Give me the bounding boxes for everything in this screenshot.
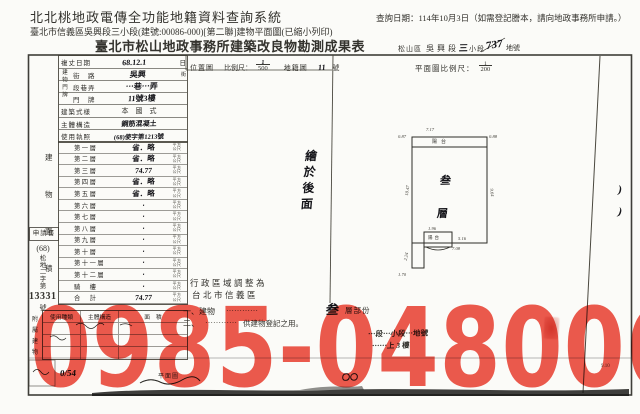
floor-unit: 平方公尺 bbox=[167, 247, 187, 256]
door-number-label: 門 牌 bbox=[71, 94, 96, 104]
door-number-value: 11號3樓 bbox=[95, 92, 188, 105]
floor-row: 第二層 省．略 平方公尺 bbox=[59, 154, 187, 166]
scanned-document-page: 北北桃地政電傳全功能地籍資料查詢系統 查詢日期：114年10月3日（如需登記謄本… bbox=[0, 0, 640, 414]
cadastral-map-label: 地籍圖 bbox=[284, 64, 308, 72]
floor-label: 第六層 bbox=[59, 201, 120, 210]
floor-label: 第四層 bbox=[59, 177, 120, 186]
unit-bottom: 公尺 bbox=[167, 274, 187, 278]
floor-label: 第八層 bbox=[59, 224, 120, 233]
floor-row: 第六層 ‧ 平方公尺 bbox=[59, 200, 187, 212]
note-char: 於 bbox=[303, 164, 316, 180]
floor-unit: 平方公尺 bbox=[167, 235, 187, 244]
side-char: 建 bbox=[45, 152, 53, 163]
unit-bottom: 公尺 bbox=[167, 194, 187, 198]
floor-row: 第三層 74.77 平方公尺 bbox=[59, 165, 187, 177]
floor-row: 第五層 省．略 平方公尺 bbox=[59, 188, 187, 200]
floor-label: 第三層 bbox=[59, 166, 120, 175]
plan-scale-fraction: 1 200 bbox=[479, 61, 493, 74]
unit-bottom: 公尺 bbox=[167, 205, 187, 209]
unit-bottom: 公尺 bbox=[167, 228, 187, 232]
app-char: 字 bbox=[29, 276, 57, 283]
survey-date-unit: 日 bbox=[178, 57, 188, 67]
survey-date-label: 複丈日期 bbox=[59, 57, 91, 67]
lane-value: ⋯巷⋯弄 bbox=[95, 80, 188, 93]
floor-row: 第一層 省．略 平方公尺 bbox=[59, 142, 187, 154]
floor-value: 省．略 bbox=[119, 153, 167, 165]
street-label: 街 路 bbox=[71, 70, 96, 80]
plan-scale-den: 200 bbox=[479, 65, 493, 73]
street-value: 吳興 bbox=[95, 68, 180, 80]
floor-unit: 平方公尺 bbox=[167, 224, 187, 233]
unit-bottom: 公尺 bbox=[167, 240, 187, 244]
door-number-row: 門 牌 11號3樓 bbox=[59, 93, 187, 105]
doc-subsection-handwritten: 三 bbox=[458, 41, 468, 54]
structure-row: 主體構造 鋼筋混凝土 bbox=[59, 118, 187, 130]
structure-value: 鋼筋混凝土 bbox=[90, 118, 187, 130]
watermark-phone-number: 0985-048006 bbox=[30, 292, 640, 404]
floor-label: 第七層 bbox=[59, 212, 120, 221]
floor-label: 第一層 bbox=[59, 143, 120, 152]
floor-value: ‧ bbox=[120, 200, 168, 210]
unit-bottom: 公尺 bbox=[167, 147, 187, 151]
location-scale-row: 位置圖 比例尺： 1 500 地籍圖 11 號 bbox=[190, 57, 339, 75]
floor-unit: 平方公尺 bbox=[167, 143, 187, 152]
floor-unit: 平方公尺 bbox=[167, 270, 187, 279]
building-style-value: 本 國 式 bbox=[91, 106, 187, 116]
floor-value: ‧ bbox=[120, 270, 168, 280]
floor-row: 第十層 ‧ 平方公尺 bbox=[59, 246, 187, 258]
floor-row: 第九層 ‧ 平方公尺 bbox=[59, 235, 187, 247]
building-style-label: 建築式樣 bbox=[59, 106, 91, 116]
balcony-top-label: 陽台 bbox=[432, 138, 450, 145]
scale-numerator: 1 bbox=[256, 60, 270, 67]
plan-scale-label: 平面圖比例尺： bbox=[415, 64, 475, 73]
floor-label: 第十二層 bbox=[59, 270, 120, 279]
unit-bottom: 公尺 bbox=[167, 159, 187, 163]
floor-value: 74.77 bbox=[120, 165, 168, 175]
floor-value: 省．略 bbox=[119, 188, 167, 200]
floor-label: 第十一層 bbox=[59, 258, 120, 267]
floor-value: ‧ bbox=[120, 212, 168, 222]
side-char: 物 bbox=[45, 189, 53, 200]
floor-row: 第十二層 ‧ 平方公尺 bbox=[59, 269, 187, 281]
location-label: 位置圖 bbox=[190, 64, 214, 72]
floor-row: 第七層 ‧ 平方公尺 bbox=[59, 211, 187, 223]
floor-label: 第十層 bbox=[59, 247, 120, 256]
doc-subsection-label: 小段 bbox=[469, 44, 485, 54]
survey-date-row: 複丈日期 68.12.1 日 bbox=[59, 56, 187, 69]
floor-value: 省．略 bbox=[119, 141, 167, 153]
application-box-label: 申請書 bbox=[29, 227, 59, 241]
floor-row: 第八層 ‧ 平方公尺 bbox=[59, 223, 187, 235]
survey-date-value: 68.12.1 bbox=[91, 57, 178, 68]
building-info-form: 複丈日期 68.12.1 日 街 路 吳興 街 段巷弄 ⋯巷⋯弄 門 牌 11號… bbox=[58, 55, 188, 143]
floor-row: 第十一層 ‧ 平方公尺 bbox=[59, 258, 187, 270]
floor-unit: 平方公尺 bbox=[167, 189, 187, 198]
lane-row: 段巷弄 ⋯巷⋯弄 bbox=[59, 81, 187, 93]
parcel-label: 地號 bbox=[506, 43, 520, 53]
floor-level-char-1: 叁 bbox=[439, 172, 451, 188]
app-char: 地 bbox=[29, 262, 57, 269]
balcony-bottom-label: 陽台 bbox=[428, 235, 441, 241]
floor-unit: 平方公尺 bbox=[167, 178, 187, 187]
floor-value: ‧ bbox=[120, 235, 168, 245]
unit-bottom: 公尺 bbox=[167, 263, 187, 267]
doc-district: 松山區 bbox=[398, 44, 422, 54]
application-year: (68) bbox=[29, 244, 57, 253]
street-row: 街 路 吳興 街 bbox=[59, 69, 187, 81]
structure-label: 主體構造 bbox=[59, 119, 91, 129]
floor-area-table: 第一層 省．略 平方公尺 第二層 省．略 平方公尺 第三層 74.77 平方公尺… bbox=[58, 141, 188, 305]
building-style-row: 建築式樣 本 國 式 bbox=[59, 105, 187, 118]
unit-bottom: 公尺 bbox=[167, 182, 187, 186]
doc-title: 臺北市松山地政事務所建築改良物勘測成果表 bbox=[95, 36, 365, 55]
location-scale-label: 比例尺： bbox=[224, 64, 252, 72]
floor-unit: 平方公尺 bbox=[167, 166, 187, 175]
floor-unit: 平方公尺 bbox=[167, 259, 187, 268]
floor-value: 省．略 bbox=[119, 176, 167, 188]
unit-bottom: 公尺 bbox=[167, 217, 187, 221]
address-group-label: 建物門牌 bbox=[59, 69, 70, 99]
floor-row: 第四層 省．略 平方公尺 bbox=[59, 177, 187, 189]
plan-scale-label-row: 平面圖比例尺： 1 200 bbox=[415, 58, 492, 76]
app-char: 松 bbox=[29, 255, 57, 262]
floor-label: 第五層 bbox=[59, 189, 120, 198]
location-scale-fraction: 1 500 bbox=[256, 60, 270, 73]
floor-label: 第九層 bbox=[59, 235, 120, 244]
floor-unit: 平方公尺 bbox=[167, 201, 187, 210]
floor-unit: 平方公尺 bbox=[167, 212, 187, 221]
floor-unit: 平方公尺 bbox=[167, 155, 187, 164]
floor-level-char-2: 層 bbox=[436, 205, 448, 221]
note-char: 面 bbox=[300, 196, 313, 212]
floor-rows: 第一層 省．略 平方公尺 第二層 省．略 平方公尺 第三層 74.77 平方公尺… bbox=[59, 142, 187, 304]
cadastral-map-no: 11 bbox=[317, 63, 325, 72]
address-group-text: 建物門牌 bbox=[59, 69, 68, 99]
cadastral-map-unit: 號 bbox=[332, 64, 339, 72]
floor-value: ‧ bbox=[120, 223, 168, 233]
note-char: 繪 bbox=[304, 148, 317, 164]
floor-value: ‧ bbox=[120, 246, 168, 256]
lane-label: 段巷弄 bbox=[71, 82, 96, 92]
street-unit: 街 bbox=[179, 71, 187, 78]
use-license-label: 使用執照 bbox=[59, 131, 91, 141]
unit-bottom: 公尺 bbox=[167, 170, 187, 174]
note-char: 後 bbox=[302, 180, 315, 196]
floor-label: 第二層 bbox=[59, 154, 120, 163]
app-char: 二 bbox=[29, 269, 57, 276]
unit-bottom: 公尺 bbox=[167, 251, 187, 255]
doc-section: 吳興段 bbox=[426, 43, 459, 54]
floor-value: ‧ bbox=[120, 258, 168, 268]
